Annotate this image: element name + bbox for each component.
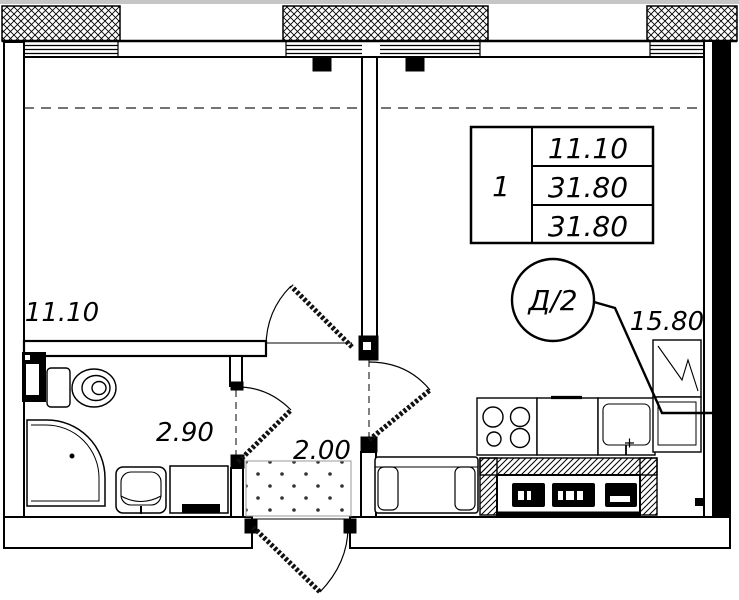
floor-plan: 1 11.10 31.80 31.80 Д/2 11.10 2.90 2.00 … xyxy=(0,0,739,600)
label-bathroom-area: 2.90 xyxy=(156,418,214,448)
kitchen-living-furniture xyxy=(375,340,703,515)
sofa xyxy=(375,457,478,513)
door-bathroom xyxy=(238,387,291,462)
kitchen-window-band xyxy=(480,458,657,515)
shower-drain xyxy=(70,454,75,459)
fridge-icon xyxy=(653,340,701,397)
wall-post xyxy=(231,382,243,390)
wall-pier xyxy=(2,6,120,41)
door-kitchen-living xyxy=(369,362,430,440)
kitchen-unit-lower xyxy=(653,397,701,452)
wall-pier xyxy=(647,6,737,41)
washing-machine xyxy=(170,466,228,513)
toilet xyxy=(47,368,116,407)
exterior-left-wall xyxy=(4,42,24,548)
vent-shaft xyxy=(22,352,46,402)
stove xyxy=(477,398,537,455)
badge-label: Д/2 xyxy=(526,284,577,317)
window-mullion xyxy=(313,57,331,71)
bathroom-sink xyxy=(116,467,166,514)
door-swing-arc xyxy=(320,527,348,592)
partition-stub xyxy=(361,452,376,517)
partition-room xyxy=(24,341,266,356)
door-handle-dot xyxy=(695,498,703,506)
stamp-total-area: 31.80 xyxy=(548,171,628,204)
kitchen-sink xyxy=(598,398,655,455)
floor-plan-page: 1 11.10 31.80 31.80 Д/2 11.10 2.90 2.00 … xyxy=(0,0,739,600)
shower xyxy=(27,420,105,506)
kitchen-counter xyxy=(537,398,598,456)
window-mullion xyxy=(406,57,424,71)
window xyxy=(20,42,728,57)
window-sill-blocks xyxy=(512,483,637,507)
door-swing-arc xyxy=(266,286,291,347)
stamp-living-area: 11.10 xyxy=(548,132,628,165)
label-hallway-area: 2.00 xyxy=(293,436,351,466)
door-leaf xyxy=(291,286,352,347)
entrance-door xyxy=(253,527,348,592)
door-swing-arc xyxy=(238,387,291,410)
wall-post xyxy=(344,519,356,533)
partition-bath-stub xyxy=(231,468,243,517)
page-edge-shadow xyxy=(0,0,739,4)
entry-mat xyxy=(246,461,351,516)
exterior-right-wall xyxy=(704,41,730,520)
stamp-total-area-summer: 31.80 xyxy=(548,210,628,243)
exterior-bottom-wall xyxy=(4,517,730,548)
partition-middle xyxy=(362,57,377,337)
door-leaf xyxy=(238,410,291,462)
area-stamp-table: 1 11.10 31.80 31.80 xyxy=(471,127,653,243)
label-room1-area: 11.10 xyxy=(25,298,99,328)
label-kitchen-living-area: 15.80 xyxy=(630,307,704,337)
door-room1 xyxy=(266,286,352,347)
door-leaf xyxy=(253,527,320,592)
door-swing-arc xyxy=(369,362,430,390)
wall-pier xyxy=(283,6,488,41)
stamp-rooms-count: 1 xyxy=(492,170,510,203)
door-leaf xyxy=(369,390,430,440)
